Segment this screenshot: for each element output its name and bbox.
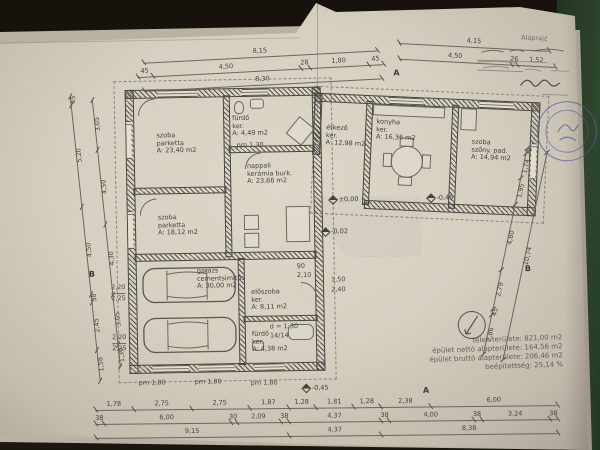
dim-value: 28 (300, 58, 309, 66)
dim-segment: 1,30 (119, 345, 122, 366)
area-summary: telek területe: 821,00 m2 épület nettó a… (428, 333, 563, 374)
dim-segment: 2,75 (133, 408, 191, 410)
dim-value: 1,95 (515, 183, 526, 199)
dim-value: 4,50 (84, 242, 93, 257)
dim-value: 1,58 (96, 357, 105, 372)
dim-chain: 9,154,378,38 (96, 425, 558, 439)
room-area: A: 23,40 m2 (157, 147, 197, 155)
dim-segment: 2,79 (494, 270, 503, 308)
dim-value: 2,45 (92, 318, 101, 333)
dim-value: 4,00 (423, 410, 438, 418)
room-label: étkező ker. A: 12,98 m2 (325, 124, 366, 148)
dim-value: 1,87 (261, 398, 276, 406)
dim-segment: 38 (381, 420, 389, 421)
dim-segment: 1,78 (95, 409, 133, 410)
window-icon (198, 364, 234, 372)
dim-segment: 1,28 (288, 407, 315, 408)
dim-value: 38 (95, 414, 103, 422)
summary-value: 25,14 % (534, 360, 563, 369)
summary-value: 206,46 m2 (524, 351, 562, 360)
dim-segment: 4,37 (288, 420, 380, 422)
section-marker-a: A (393, 68, 399, 77)
wall-note: 2,10 (297, 271, 312, 279)
dim-value: 38 (90, 293, 99, 302)
dim-segment: 1,81 (315, 406, 353, 407)
dim-value: 5,20 (74, 148, 83, 163)
dim-segment: 2,75 (191, 407, 249, 409)
sink-icon (250, 99, 264, 109)
dim-segment: 6,00 (103, 422, 230, 424)
room-area: A: 4,49 m2 (232, 130, 268, 138)
summary-value: 164,56 m2 (524, 342, 562, 351)
dim-value: 38 (549, 409, 557, 417)
chair-icon (398, 176, 412, 186)
dim-segment: 8,38 (381, 432, 558, 435)
dim-value: 4,50 (219, 62, 234, 71)
photo-of-floor-plan: { "drawing": { "form_title": "Alaprajz",… (0, 0, 600, 450)
toilet-icon (234, 101, 244, 114)
dim-segment: 2,09 (236, 421, 280, 422)
room-area: A: 4,38 m2 (252, 345, 288, 353)
level-marker: -0,02 (322, 227, 348, 235)
dim-segment: 9,15 (96, 435, 289, 438)
room-area: A: 30,00 m2 (197, 282, 245, 290)
dim-value: 6,00 (487, 396, 502, 404)
dim-segment: 2,38 (380, 405, 430, 407)
room-label: fürdő ker. A: 4,49 m2 (232, 115, 268, 138)
dim-value: 1,80 (331, 56, 346, 65)
sofa-icon (286, 206, 311, 242)
interior-wall (363, 102, 372, 204)
armchair-icon (244, 233, 259, 248)
room-label: szoba parketta A: 18,12 m2 (158, 214, 198, 237)
dim-value: 4,80 (505, 230, 516, 246)
room-label: nappali kerámia burk. A: 23,66 m2 (247, 162, 293, 185)
dim-value: 6,00 (159, 413, 174, 421)
dim-segment: 38 (95, 423, 103, 424)
window-icon (389, 97, 423, 105)
window-icon (242, 89, 268, 96)
dim-segment: 1,58 (97, 349, 101, 380)
level-marker: -0,45 (427, 193, 453, 201)
dim-value: 3,05 (113, 312, 122, 327)
room-label: előszoba ker. A: 8,11 m2 (251, 288, 287, 311)
dim-chain: 386,00302,09384,37384,00383,2438 (95, 411, 557, 425)
dim-segment: 4,37 (289, 434, 381, 436)
summary-label: beépítettség: (485, 361, 532, 371)
ramp-steps-note: 14/14 (270, 331, 289, 339)
dim-value: 2,79 (494, 282, 505, 298)
dim-segment: 1,80 (309, 64, 368, 68)
exterior-wall (313, 94, 322, 154)
ramp-slope-note: d = 1:30 (270, 322, 298, 330)
dim-value: 8,30 (255, 74, 270, 83)
dim-value: 45 (371, 54, 380, 62)
chair-icon (383, 153, 393, 167)
dim-segment: 3,05 (93, 99, 99, 149)
door-height-note: pm 1,30 (237, 141, 264, 149)
dim-value: 3,24 (508, 410, 523, 418)
dim-value: 9,15 (185, 427, 200, 435)
photo-vignette (564, 0, 594, 450)
dim-value: 30 (229, 413, 237, 421)
dim-chain: 1,782,752,751,871,281,811,282,386,00 (95, 397, 557, 411)
window-icon (152, 365, 188, 373)
dim-segment: 45 (138, 75, 153, 77)
summary-value: 821,00 m2 (524, 333, 562, 342)
chair-icon (422, 154, 432, 168)
dim-value: 1,28 (360, 397, 375, 405)
dim-value: 4,50 (448, 51, 463, 60)
room-area: A: 18,12 m2 (158, 229, 198, 237)
window-icon (126, 121, 132, 159)
room-label: konyha ker. A: 16,36 m2 (376, 118, 417, 142)
dim-segment: 1,87 (249, 407, 288, 408)
dim-value: 2,09 (251, 412, 266, 420)
dim-segment: 28 (300, 67, 309, 68)
dim-value: 2,75 (212, 399, 227, 407)
dim-value: 4,37 (327, 411, 342, 419)
dim-value: 10,74 (522, 246, 534, 266)
dim-value: 4,30 (107, 251, 116, 266)
dim-segment: 2,45 (92, 302, 98, 350)
dim-segment: 1,28 (353, 406, 380, 407)
dim-value: 8,38 (462, 424, 477, 432)
kitchen-counter-icon (373, 104, 445, 118)
window-icon (254, 363, 284, 371)
room-label: szoba parketta A: 23,40 m2 (156, 132, 196, 155)
dim-value: 4,50 (99, 179, 108, 194)
dim-segment: 4,00 (389, 419, 473, 421)
dim-segment: 38 (280, 421, 288, 422)
dim-value: 8,15 (252, 46, 267, 55)
room-area: A: 12,98 m2 (325, 139, 365, 148)
dim-segment: 6,00 (431, 404, 558, 406)
dim-value: 2,38 (398, 397, 413, 405)
room-label: garázs cementsimítás A: 30,00 m2 (197, 267, 245, 290)
dim-value: 1,81 (327, 397, 342, 405)
wall-note: 90 (297, 262, 305, 270)
pm-note: pm 1,80 (195, 377, 222, 385)
dim-segment: 3,24 (481, 418, 549, 420)
dim-segment: 38 (473, 419, 481, 420)
dim-value: 45 (140, 67, 149, 75)
dim-value: 4,37 (327, 425, 342, 433)
dim-value: 38 (380, 411, 388, 419)
dim-segment: 45 (71, 96, 73, 105)
dim-value: 2,75 (154, 399, 169, 407)
wall-note: 2,40 (331, 285, 346, 293)
level-marker: ±0,00 (329, 195, 358, 204)
dim-value: 45 (69, 96, 78, 105)
dim-value: 3,05 (93, 117, 102, 132)
north-symbol-icon (458, 311, 486, 339)
window-icon (128, 211, 134, 249)
car-icon (142, 313, 239, 357)
dim-value: 1,28 (294, 398, 309, 406)
room-area: A: 23,66 m2 (247, 177, 292, 185)
dim-value: 38 (473, 410, 481, 418)
dim-value: 1,30 (117, 348, 126, 363)
wall-note: 1,50 (331, 275, 346, 283)
section-marker-a: A (423, 386, 429, 395)
room-area: A: 8,11 m2 (251, 303, 287, 311)
window-icon (158, 90, 198, 98)
dim-value: 1,78 (107, 400, 122, 408)
dim-segment: 45 (368, 63, 383, 65)
table-icon (390, 145, 423, 178)
dim-segment: 38 (549, 418, 557, 419)
pm-note: pm 1,80 (139, 378, 166, 386)
dim-segment: 5,20 (72, 105, 84, 207)
level-marker: -0,45 (303, 384, 329, 392)
pm-note: pm 1,80 (251, 378, 278, 386)
dim-segment: 4,50 (82, 206, 92, 294)
dim-segment: 4,50 (98, 150, 107, 224)
dim-value: 38 (280, 412, 288, 420)
armchair-icon (244, 215, 259, 230)
room-area: A: 16,36 m2 (376, 133, 416, 142)
